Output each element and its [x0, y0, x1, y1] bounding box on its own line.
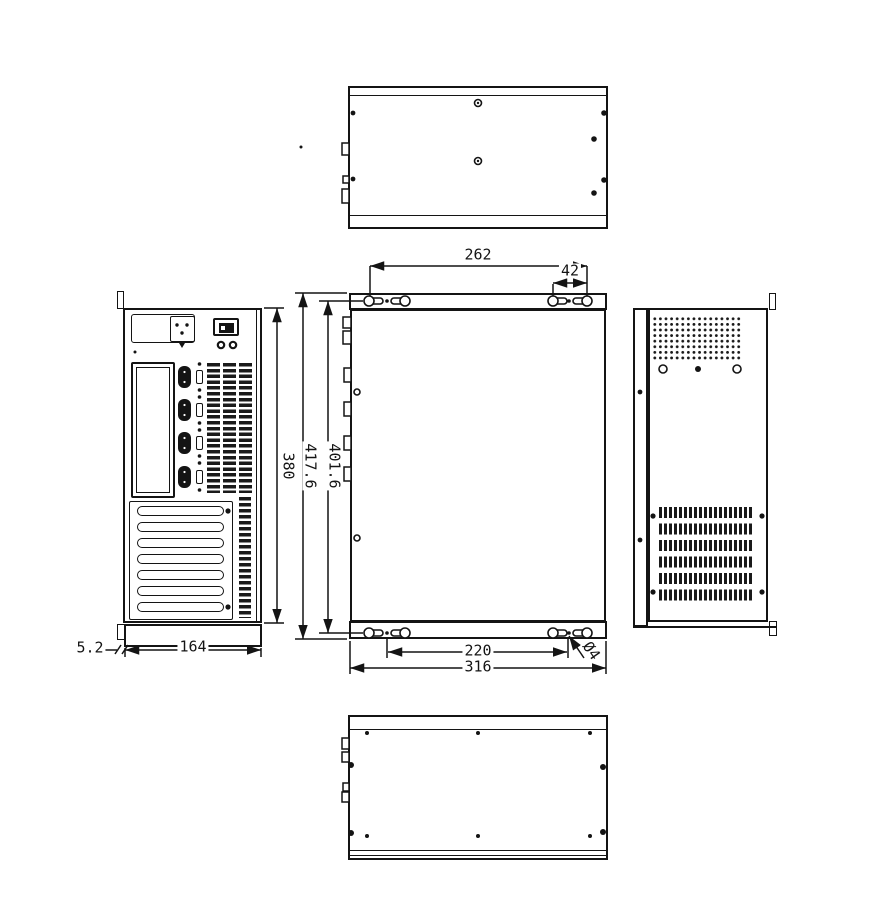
dim-label-262: 262 — [462, 248, 493, 263]
keyhole-slot — [364, 628, 383, 638]
keyhole-slot — [391, 628, 410, 638]
linework-overlay — [0, 0, 877, 906]
keyhole-slot — [548, 296, 567, 306]
keyhole-slot — [548, 628, 567, 638]
keyhole-slots — [364, 296, 592, 638]
keyhole-slot — [573, 628, 592, 638]
dim-label-42: 42 — [559, 264, 581, 279]
dim-label-401-6: 401.6 — [327, 441, 342, 490]
drawing-sheet: 262 42 380 417.6 401.6 5.2 164 220 316 Ø… — [0, 0, 877, 906]
dim-label-417-6: 417.6 — [303, 441, 318, 490]
dim-label-316: 316 — [462, 660, 493, 675]
psu-marker-triangle — [179, 343, 185, 348]
dim-label-164: 164 — [177, 640, 208, 655]
dim-label-380: 380 — [281, 450, 296, 481]
stray-mark — [300, 146, 303, 149]
keyhole-slot — [573, 296, 592, 306]
dim-label-5-2: 5.2 — [74, 641, 105, 656]
pilot-holes — [385, 299, 571, 635]
dim-label-220: 220 — [462, 644, 493, 659]
dimension-lines — [103, 266, 606, 674]
ac-inlet-pins — [175, 323, 188, 348]
keyhole-slot — [364, 296, 383, 306]
screw-holes — [134, 100, 765, 839]
keyhole-slot — [391, 296, 410, 306]
connector-pin-dots — [183, 362, 201, 492]
